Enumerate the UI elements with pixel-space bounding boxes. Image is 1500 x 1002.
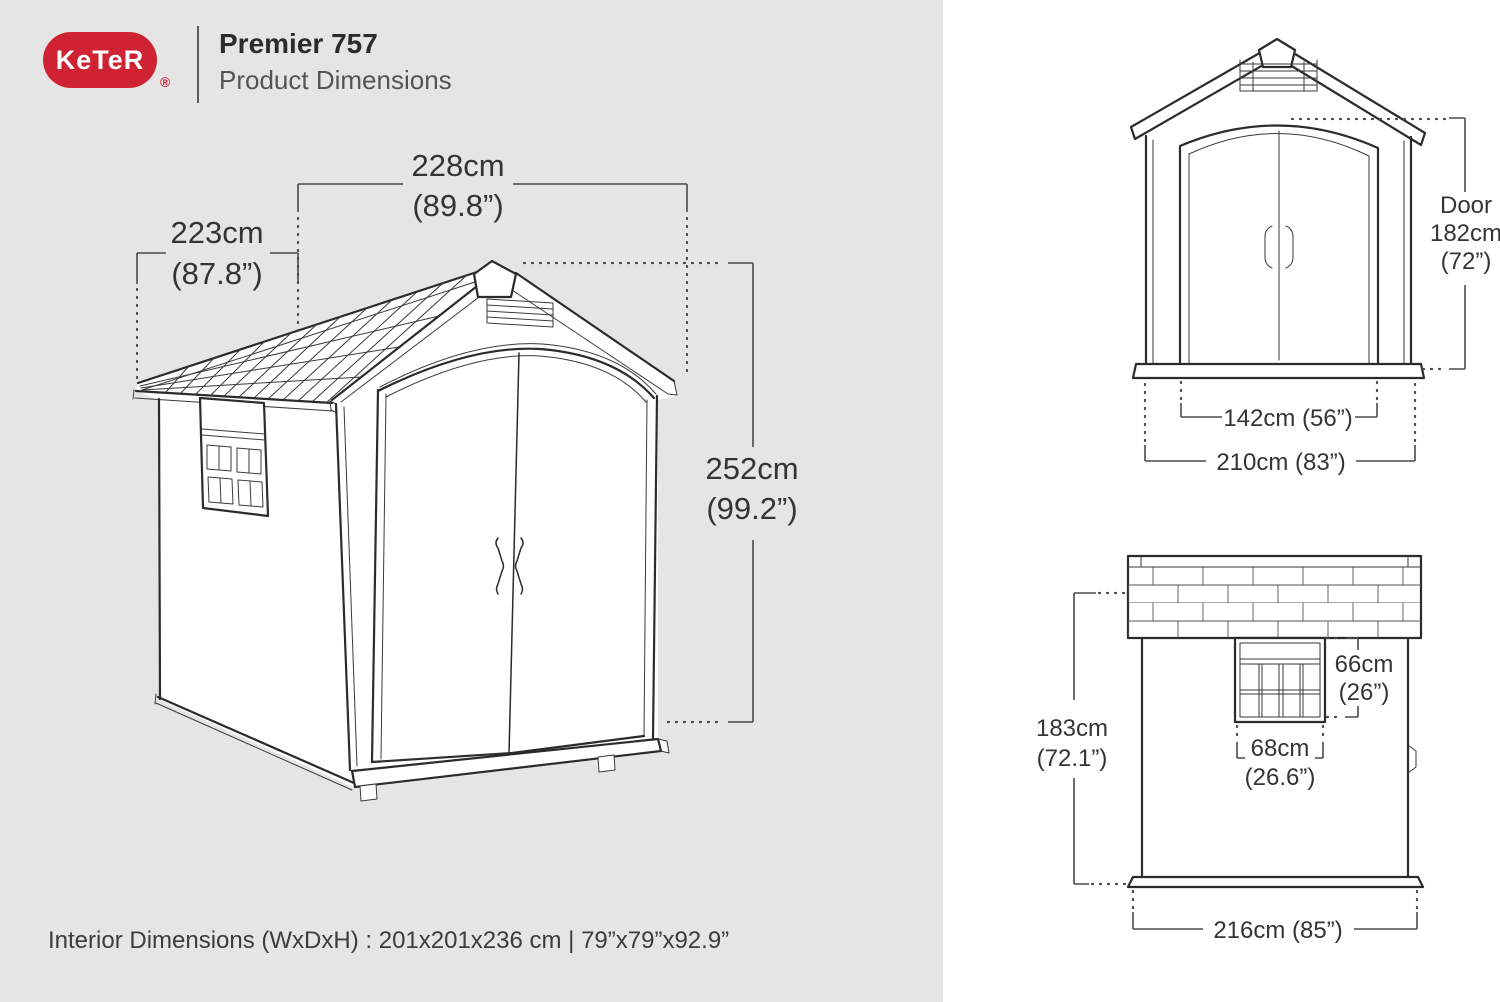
side-door-handle xyxy=(1408,745,1416,773)
roof-shingle-pattern xyxy=(1128,567,1421,638)
door-height-in-label: (72”) xyxy=(1441,248,1492,275)
shed-3d-view xyxy=(133,261,677,801)
side-height-in-label: (72.1”) xyxy=(1037,745,1108,772)
side-window xyxy=(1235,638,1325,722)
window-width-cm-label: 68cm xyxy=(1251,735,1310,762)
door-height-cm-label: 182cm xyxy=(1430,220,1500,247)
front-base xyxy=(1133,364,1424,378)
main-depth-in-label: (87.8”) xyxy=(171,256,262,291)
door-width-label: 142cm (56”) xyxy=(1223,405,1352,432)
interior-dimensions-note: Interior Dimensions (WxDxH) : 201x201x23… xyxy=(48,927,729,955)
side-base xyxy=(1128,877,1423,887)
main-height-cm-label: 252cm xyxy=(705,451,798,486)
main-depth-cm-label: 223cm xyxy=(170,215,263,250)
shed-side-view xyxy=(1128,556,1423,887)
front-apex-cap xyxy=(1259,39,1295,67)
side-height-cm-label: 183cm xyxy=(1036,715,1108,742)
window-width-in-label: (26.6”) xyxy=(1245,764,1316,791)
main-width-in-label: (89.8”) xyxy=(412,188,503,223)
side-overall-width-label: 216cm (85”) xyxy=(1213,917,1342,944)
front-doors xyxy=(1180,125,1378,364)
main-width-cm-label: 228cm xyxy=(411,148,504,183)
window-height-cm-label: 66cm xyxy=(1335,651,1394,678)
side-window xyxy=(200,398,268,516)
shed-front-view xyxy=(1131,39,1425,378)
front-overall-width-label: 210cm (83”) xyxy=(1216,449,1345,476)
main-height-in-label: (99.2”) xyxy=(706,491,797,526)
dimension-diagram-canvas: 228cm (89.8”) 223cm (87.8”) 252cm (99.2”… xyxy=(0,0,1500,1002)
door-label: Door xyxy=(1440,192,1492,219)
roof-apex-cap xyxy=(474,261,516,297)
window-height-in-label: (26”) xyxy=(1339,679,1390,706)
